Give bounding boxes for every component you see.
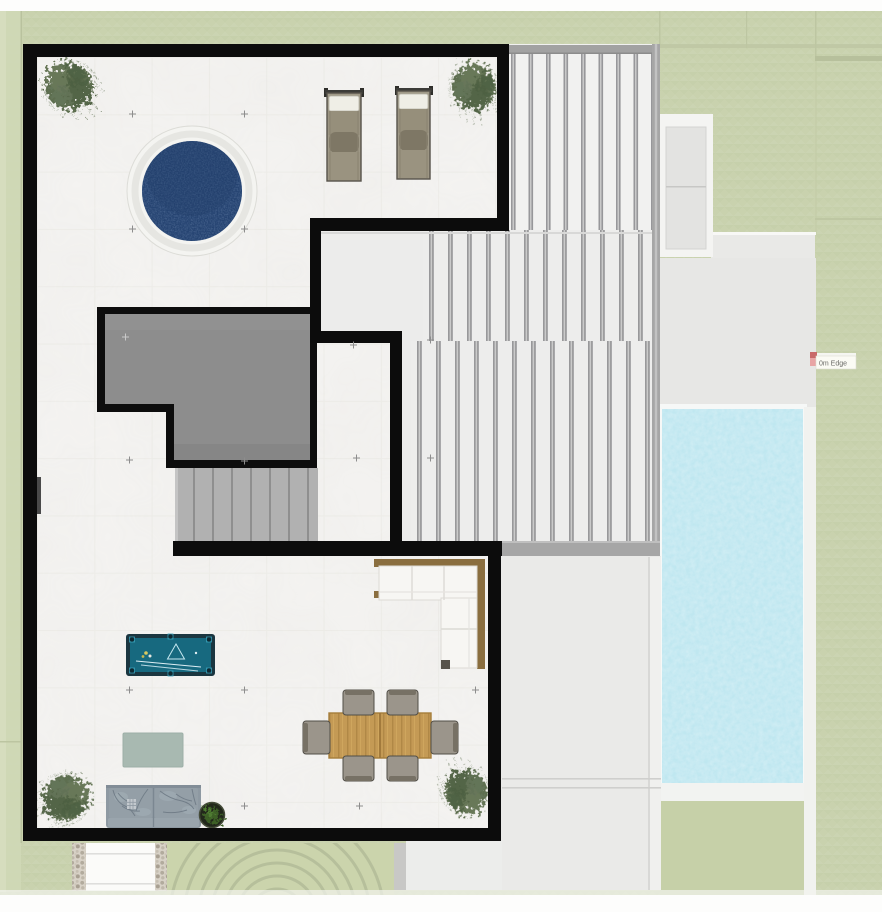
svg-text:0m Edge: 0m Edge bbox=[819, 361, 847, 368]
